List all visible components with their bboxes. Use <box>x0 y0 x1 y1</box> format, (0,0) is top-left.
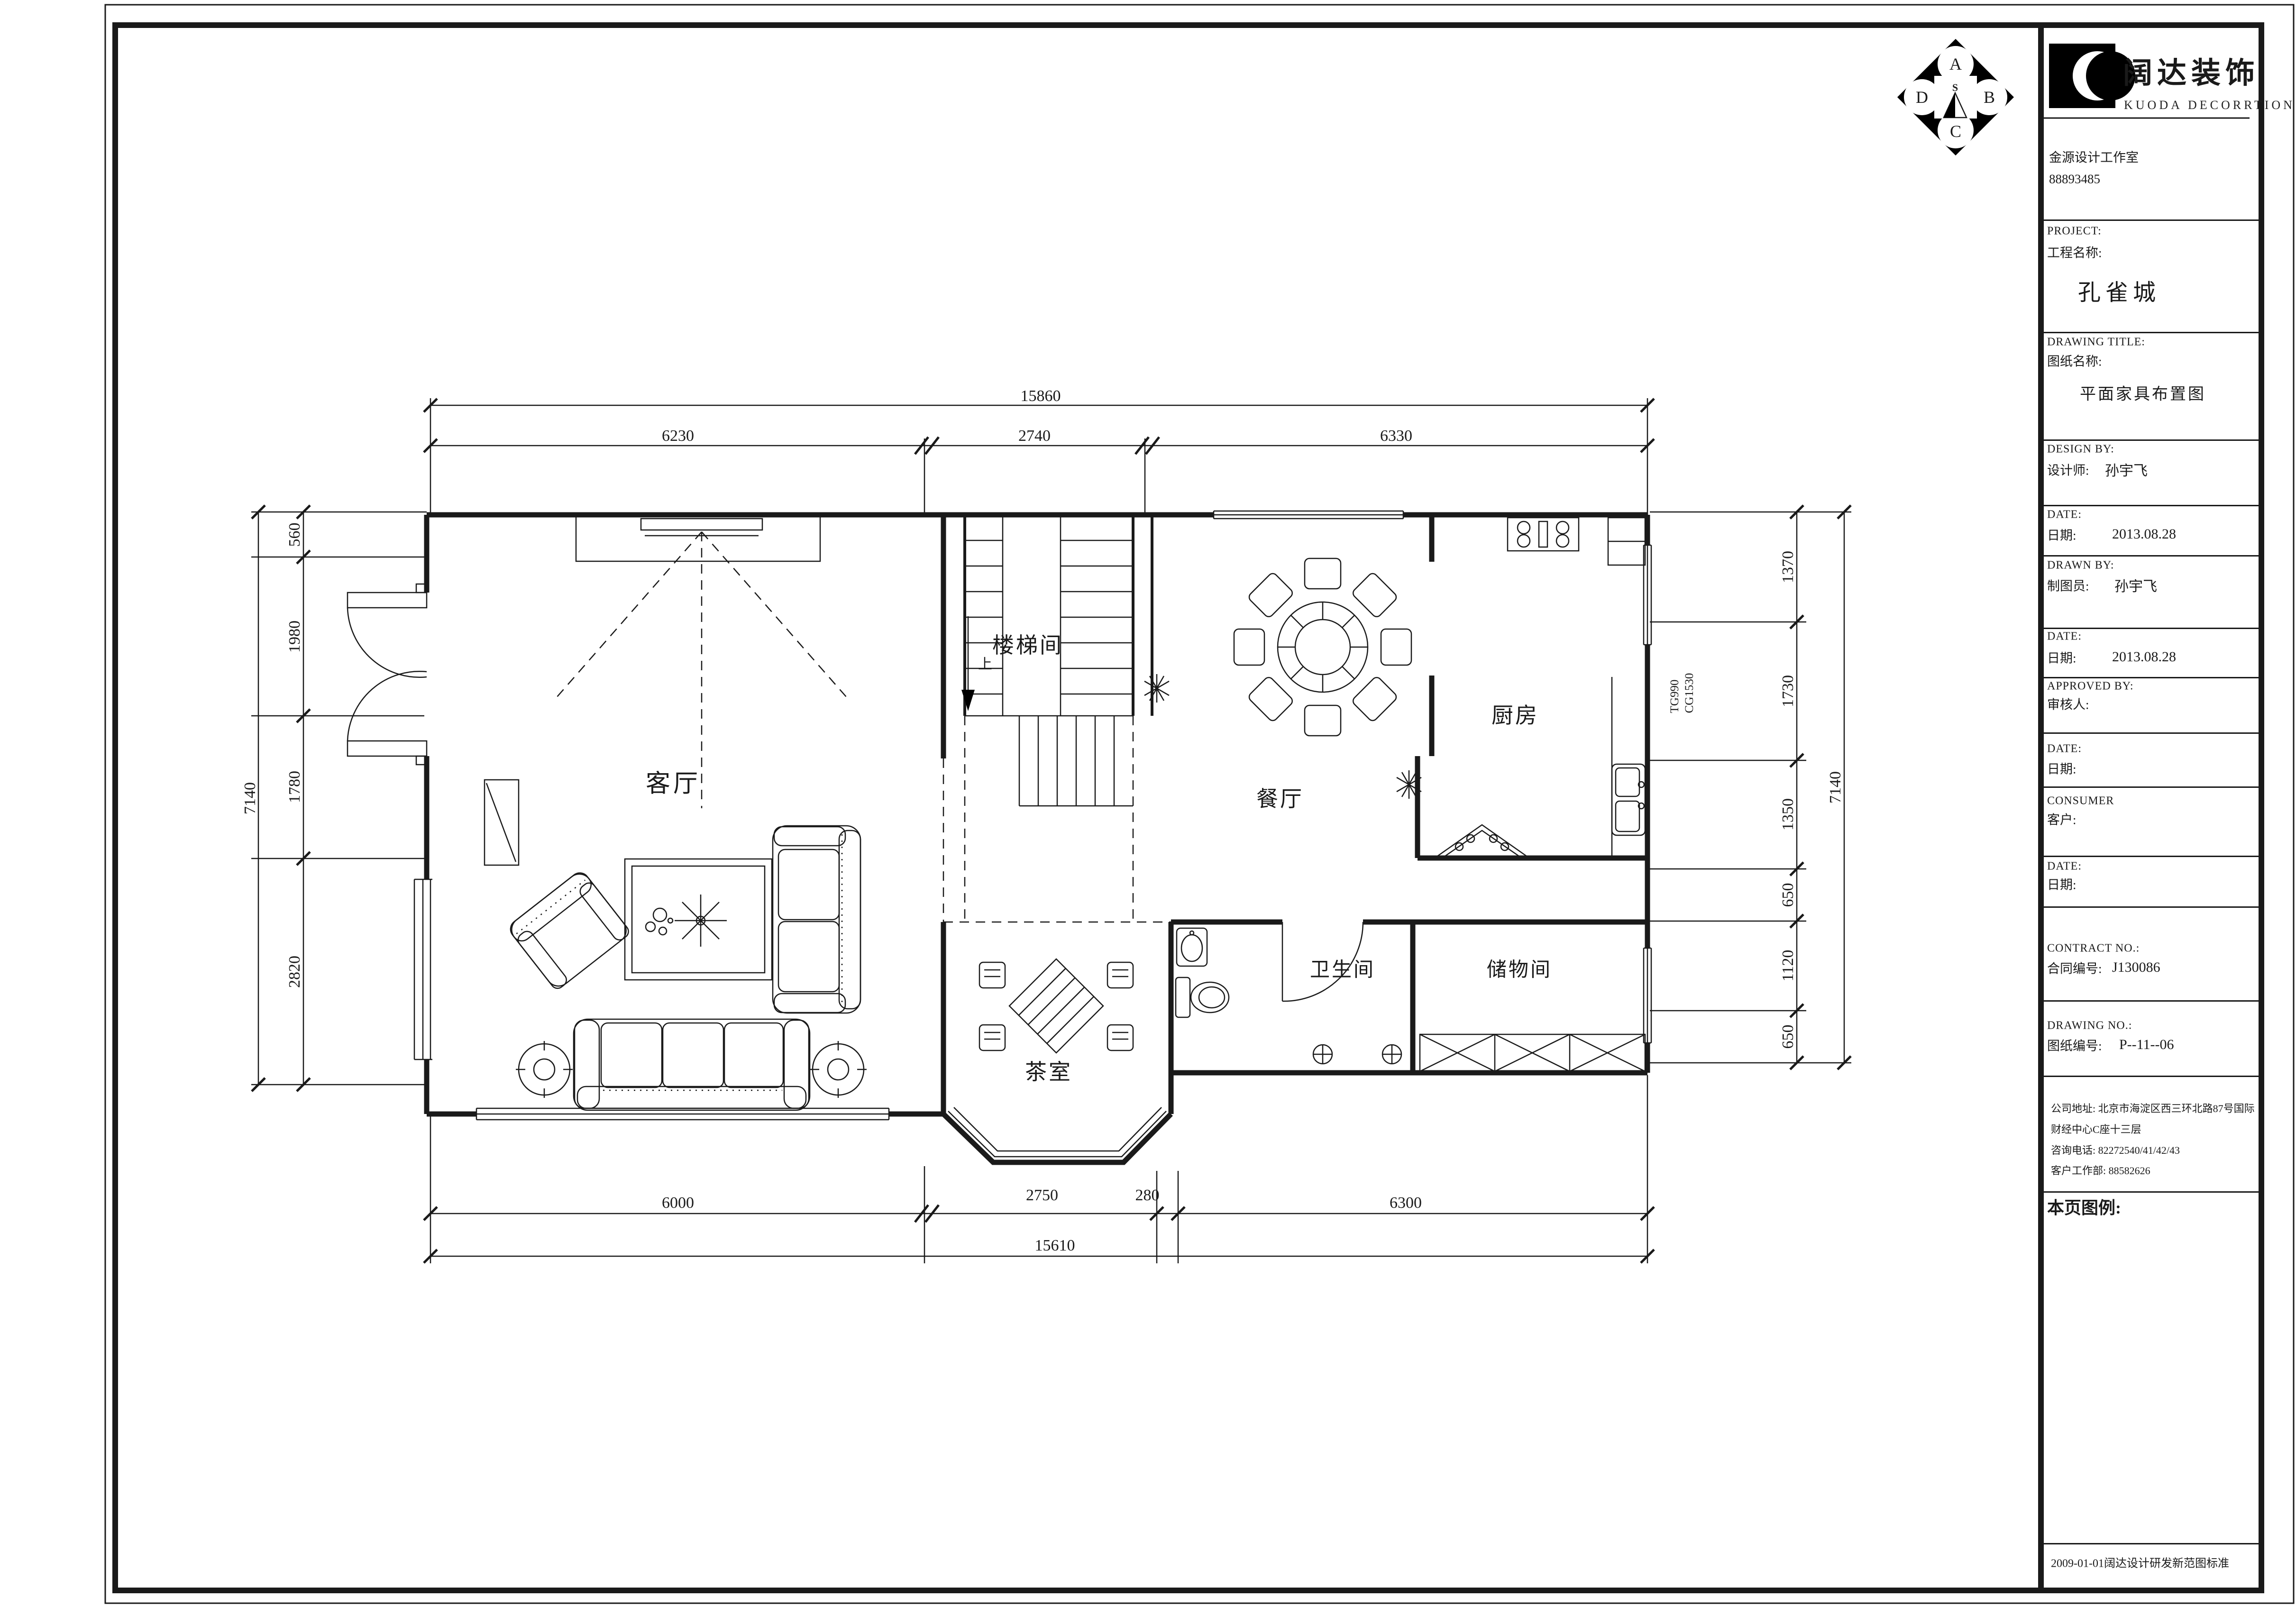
date3-label-cn: 日期: <box>2047 759 2076 777</box>
date1-value: 2013.08.28 <box>2112 526 2176 542</box>
contract-label-cn: 合同编号: <box>2047 959 2102 977</box>
divider <box>2041 505 2260 506</box>
dim-bottom-seg: 6000 <box>662 1194 694 1212</box>
divider <box>2041 1076 2260 1077</box>
toilet <box>1176 977 1229 1017</box>
compass-letter-top: A <box>1949 54 1962 74</box>
floor-plan-drawing <box>0 0 2296 1607</box>
studio-name: 金源设计工作室 <box>2049 147 2139 166</box>
drawing-no-label-cn: 图纸编号: <box>2047 1036 2102 1054</box>
kitchen-sink <box>1612 677 1645 856</box>
dim-top-seg: 6230 <box>662 427 694 445</box>
divider <box>2041 628 2260 629</box>
dim-bottom-seg: 280 <box>1135 1187 1160 1205</box>
divider <box>2041 1191 2260 1193</box>
drawn-by-label-en: DRAWN BY: <box>2047 559 2114 572</box>
dashed-openings <box>557 532 1171 922</box>
dim-left-seg: 1980 <box>286 621 304 653</box>
brand-name: 阔达装饰 <box>2123 49 2259 91</box>
dining-table-set <box>1234 558 1411 736</box>
room-label-stair: 楼梯间 <box>992 628 1063 659</box>
contract-label-en: CONTRACT NO.: <box>2047 942 2140 955</box>
date2-label-cn: 日期: <box>2047 648 2076 667</box>
compass-center-label: S <box>1952 82 1958 94</box>
tea-table <box>979 959 1133 1053</box>
design-by-label-en: DESIGN BY: <box>2047 443 2114 456</box>
divider <box>2041 1000 2260 1002</box>
drawing-no-label-en: DRAWING NO.: <box>2047 1020 2132 1032</box>
loveseat-sofa <box>773 826 860 1013</box>
compass-letter-right: B <box>1984 87 1995 107</box>
floor-drains <box>1313 1045 1401 1064</box>
drawing-title-label-en: DRAWING TITLE: <box>2047 336 2145 349</box>
storage-shelving <box>1420 1034 1645 1071</box>
divider <box>2041 439 2260 441</box>
fridge <box>1608 518 1645 565</box>
sheet-border <box>105 5 2294 1603</box>
stove <box>1508 518 1579 551</box>
dim-right-seg: 650 <box>1779 1025 1797 1049</box>
wall-tag-line2: CG1530 <box>1682 673 1697 713</box>
dim-left-seg: 560 <box>286 523 304 547</box>
dim-bottom-seg: 6300 <box>1390 1194 1422 1212</box>
date1-label-cn: 日期: <box>2047 525 2076 544</box>
studio-phone: 88893485 <box>2049 172 2100 187</box>
dim-right-seg: 1730 <box>1779 675 1797 707</box>
compass-letter-bottom: C <box>1950 121 1961 141</box>
design-by-label-cn: 设计师: <box>2047 460 2089 479</box>
project-name: 孔雀城 <box>2078 274 2160 307</box>
date2-label-en: DATE: <box>2047 630 2082 643</box>
legend-label: 本页图例: <box>2047 1194 2121 1219</box>
divider <box>2041 906 2260 908</box>
room-label-dining: 餐厅 <box>1256 782 1304 813</box>
stair-up-label: 上 <box>978 652 992 673</box>
date2-value: 2013.08.28 <box>2112 649 2176 665</box>
company-phone: 咨询电话: 82272540/41/42/43 <box>2051 1142 2180 1157</box>
side-table-right <box>810 1041 867 1098</box>
dim-top-seg: 2740 <box>1018 427 1051 445</box>
divider <box>2041 219 2260 221</box>
wall-tag: TG990 CG1530 <box>1667 673 1697 713</box>
consumer-label-en: CONSUMER <box>2047 795 2114 808</box>
company-service: 客户工作部: 88582626 <box>2051 1162 2150 1178</box>
room-label-kitchen: 厨房 <box>1491 698 1539 730</box>
divider <box>2041 786 2260 788</box>
drafter-name: 孙宇飞 <box>2114 575 2157 595</box>
room-label-bath: 卫生间 <box>1310 954 1375 983</box>
dim-top-seg: 6330 <box>1380 427 1412 445</box>
compass-letter-left: D <box>1916 87 1928 107</box>
dim-right-seg: 1370 <box>1779 551 1797 583</box>
room-label-storage: 储物间 <box>1487 954 1552 983</box>
wall-tag-line1: TG990 <box>1667 673 1682 713</box>
tv-cabinet <box>576 517 820 561</box>
dim-right-seg: 1120 <box>1779 950 1797 982</box>
footer-note: 2009-01-01阔达设计研发新范图标准 <box>2051 1554 2229 1570</box>
dim-left-total: 7140 <box>241 782 259 814</box>
dim-right-total: 7140 <box>1827 771 1845 803</box>
plant-icon <box>1144 674 1169 703</box>
divider <box>2041 332 2260 333</box>
room-label-living: 客厅 <box>646 764 701 799</box>
project-label-cn: 工程名称: <box>2047 243 2102 261</box>
divider <box>2041 732 2260 734</box>
drawing-no: P--11--06 <box>2119 1037 2174 1053</box>
armchair <box>507 869 631 991</box>
drawing-sheet: { "logo": { "brand_cn": "阔达装饰", "brand_e… <box>0 0 2296 1607</box>
corner-cabinet <box>485 780 519 865</box>
dim-right-seg: 650 <box>1779 883 1797 907</box>
dim-right-seg: 1350 <box>1779 798 1797 831</box>
three-seat-sofa <box>574 1019 810 1110</box>
corner-counter <box>1437 825 1527 856</box>
dim-left-seg: 1780 <box>286 771 304 803</box>
dim-top-total: 15860 <box>1021 387 1061 405</box>
divider <box>2041 677 2260 678</box>
project-label-en: PROJECT: <box>2047 225 2102 238</box>
divider <box>2041 555 2260 557</box>
side-table-left <box>516 1041 573 1098</box>
company-address-2: 财经中心C座十三层 <box>2051 1121 2141 1136</box>
company-address-1: 公司地址: 北京市海淀区西三环北路87号国际 <box>2051 1100 2255 1115</box>
dim-left-seg: 2820 <box>286 956 304 988</box>
approved-by-label-cn: 审核人: <box>2047 694 2089 713</box>
contract-no: J130086 <box>2112 959 2160 976</box>
divider <box>2041 1543 2260 1544</box>
date4-label-en: DATE: <box>2047 860 2082 873</box>
dim-bottom-seg: 2750 <box>1026 1187 1058 1205</box>
room-label-tea: 茶室 <box>1025 1055 1072 1086</box>
date1-label-en: DATE: <box>2047 509 2082 521</box>
designer-name: 孙宇飞 <box>2105 459 2148 480</box>
entry-double-door <box>348 584 427 765</box>
brand-name-en: KUODA DECORRTION <box>2124 98 2295 112</box>
rug <box>625 859 772 980</box>
approved-by-label-en: APPROVED BY: <box>2047 680 2134 693</box>
consumer-label-cn: 客户: <box>2047 810 2076 828</box>
date4-label-cn: 日期: <box>2047 875 2076 893</box>
bathroom-sink <box>1177 928 1207 966</box>
divider <box>2041 856 2260 857</box>
drawn-by-label-cn: 制图员: <box>2047 576 2089 594</box>
drawing-title-label-cn: 图纸名称: <box>2047 351 2102 370</box>
dim-bottom-total: 15610 <box>1035 1237 1075 1255</box>
date3-label-en: DATE: <box>2047 743 2082 756</box>
drawing-title: 平面家具布置图 <box>2080 381 2206 404</box>
